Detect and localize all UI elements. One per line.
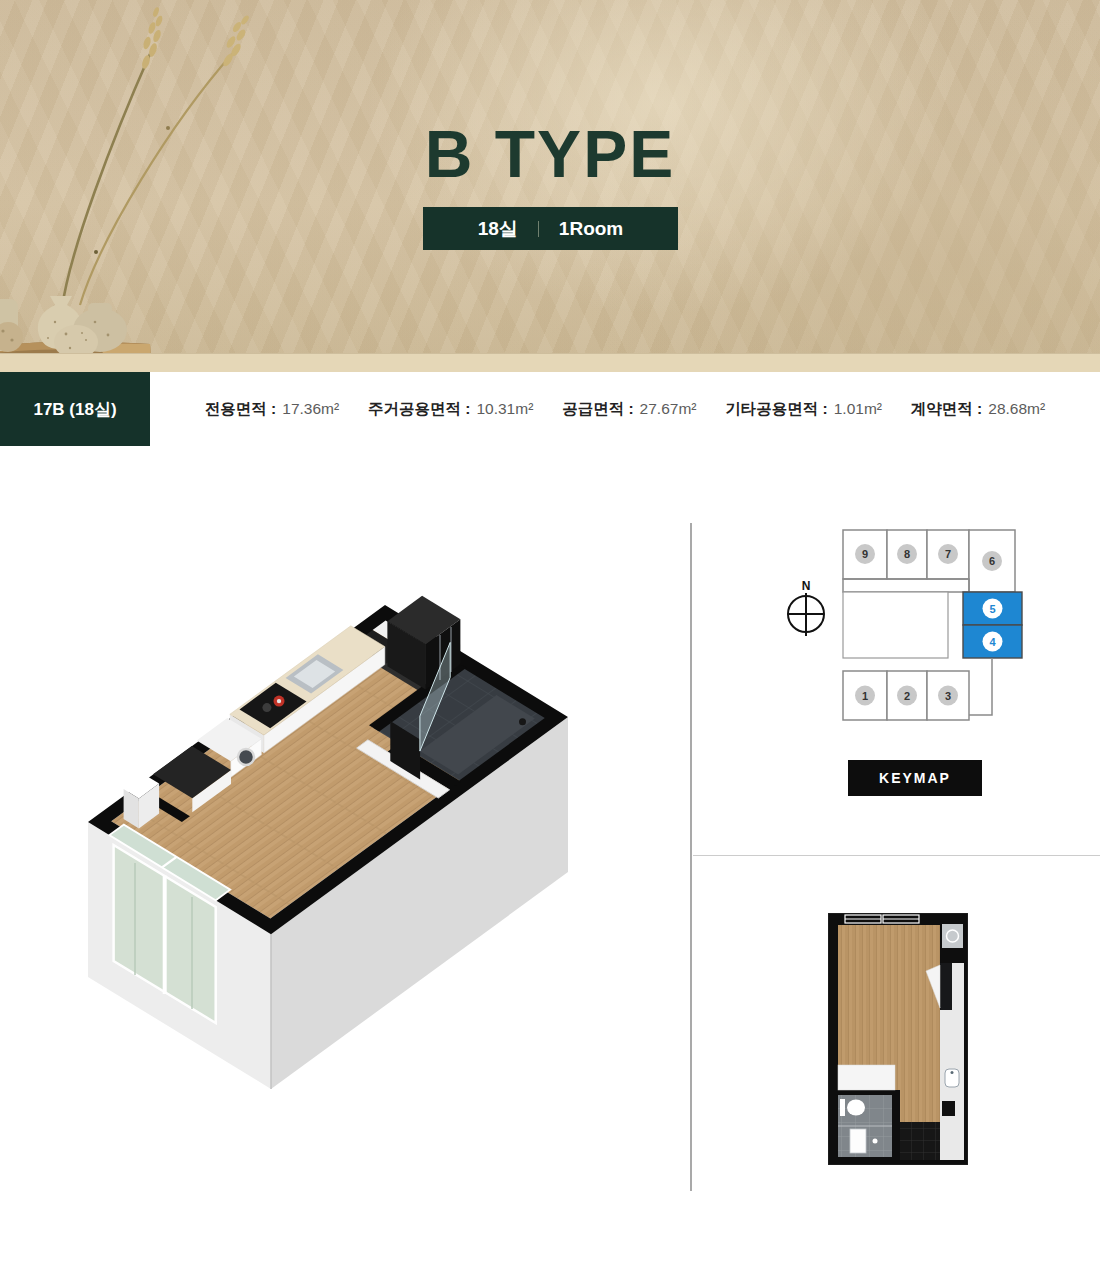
plan2d-shower-tray: [850, 1129, 866, 1153]
plan2d-bathroom: [838, 1095, 892, 1157]
spec-list: 전용면적 :17.36m² 주거공용면적 :10.31m² 공급면적 :27.6…: [150, 372, 1100, 446]
plan2d-ac-unit: [942, 924, 963, 948]
unit-number-8: 8: [904, 548, 910, 560]
keymap-corridor: [843, 579, 969, 592]
unit-number-3: 3: [945, 690, 951, 702]
keymap-button[interactable]: KEYMAP: [848, 760, 982, 796]
badge-divider: [538, 221, 539, 237]
spec-item-supply-area: 공급면적 :27.67m²: [562, 399, 696, 420]
compass-icon: N: [788, 579, 824, 636]
badge-room-type: 1Room: [559, 218, 623, 240]
type-badge: 18실 1Room: [423, 207, 678, 250]
plan2d-drain: [873, 1139, 878, 1144]
shower-head-icon: [519, 718, 526, 725]
spec-item-residential-common-area: 주거공용면적 :10.31m²: [368, 399, 533, 420]
cooktop-burner: [262, 703, 271, 712]
keymap-core: [843, 592, 948, 658]
hero-banner: B TYPE 18실 1Room: [0, 0, 1100, 372]
content-area: N 9 8: [0, 446, 1100, 1281]
page: B TYPE 18실 1Room 17B (18실) 전용면적 :17.36m²…: [0, 0, 1100, 1281]
floorplan-3d: [55, 575, 645, 1175]
plan2d-fridge: [940, 963, 952, 1010]
unit-number-1: 1: [862, 690, 868, 702]
unit-number-9: 9: [862, 548, 868, 560]
page-title: B TYPE: [0, 116, 1100, 192]
spec-item-exclusive-area: 전용면적 :17.36m²: [205, 399, 339, 420]
hero-shelf-ledge: [0, 353, 1100, 372]
horizontal-divider: [693, 855, 1100, 856]
compass-north-label: N: [802, 579, 811, 593]
keymap-diagram: N 9 8: [770, 512, 1050, 742]
unit-number-7: 7: [945, 548, 951, 560]
plan2d-entry-tiles: [900, 1122, 940, 1160]
spec-item-other-common-area: 기타공용면적 :1.01m²: [725, 399, 882, 420]
keymap-outline-step: [969, 658, 992, 715]
spec-item-contract-area: 계약면적 :28.68m²: [911, 399, 1045, 420]
plan2d-toilet: [840, 1099, 845, 1116]
badge-room-count: 18실: [478, 216, 518, 242]
spec-bar: 17B (18실) 전용면적 :17.36m² 주거공용면적 :10.31m² …: [0, 372, 1100, 446]
unit-code-badge: 17B (18실): [0, 372, 150, 446]
vertical-divider: [690, 523, 692, 1191]
unit-number-2: 2: [904, 690, 910, 702]
floorplan-2d: [828, 913, 968, 1165]
unit-number-4: 4: [989, 636, 996, 648]
plan2d-cooktop: [942, 1101, 955, 1116]
unit-number-5: 5: [989, 603, 995, 615]
unit-number-6: 6: [989, 555, 995, 567]
plan2d-bed: [838, 1065, 895, 1090]
